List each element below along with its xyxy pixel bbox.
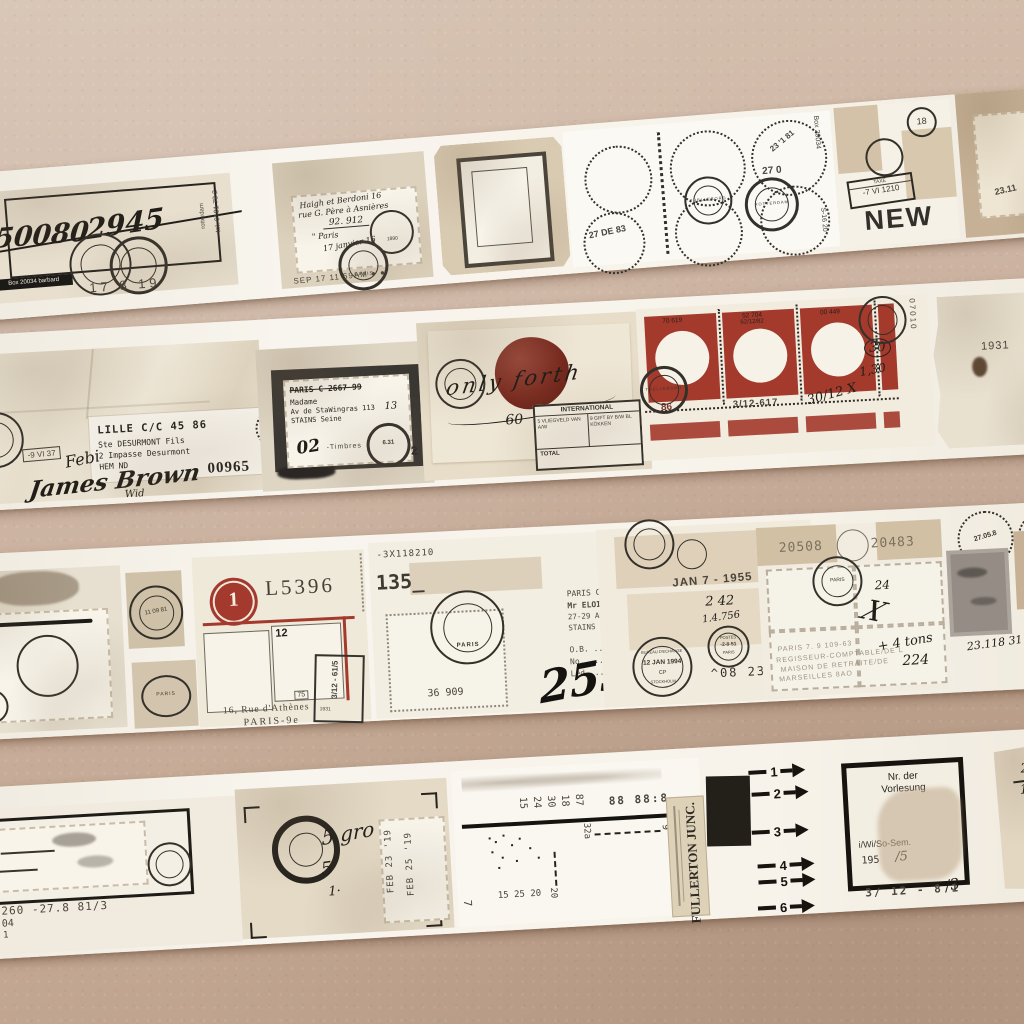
address-paris9: PARIS-9e (243, 715, 300, 729)
bracket-corner (250, 922, 267, 939)
postmark-ring-631: 6.31 (365, 422, 411, 468)
white-stamp: 22 19 (0, 608, 113, 724)
ephemera-rotterdam-label: 50080 2945 tel. 0101 78 2 rotterdam Box … (0, 173, 239, 304)
arrow-row-1: 1 (748, 762, 806, 781)
dark-stamp-line2: Madame (290, 397, 318, 407)
handwriting-5gro: 5 gro (322, 816, 375, 850)
ring-date-631: 6.31 (369, 439, 407, 447)
ephemera-dotted-circles-sheet: TRELLEBORG ROTTERDAM 27 DE 83 27 0 23 '1… (562, 110, 840, 267)
ephemera-vorlesung-box: Nr. der Vorlesung i/Wi/So-Sem. 195 /5 (841, 757, 970, 892)
tan-wash (409, 557, 542, 595)
red-stamp-1-number: 70 619 (662, 317, 682, 325)
ephemera-torn-1931-paper: 1931 (930, 289, 1024, 449)
rotated-number: 24 (531, 796, 543, 809)
number-135: 135_ (375, 568, 424, 594)
red-bar-partial (884, 411, 901, 428)
ephemera-empty-frame (433, 136, 571, 276)
ephemera-l5396-ticket: 1 L5396 12 75 16, Rue d'Athènes PARIS-9e… (192, 549, 372, 727)
arrow-head-icon (792, 763, 806, 778)
bracket-corner (244, 806, 261, 823)
table-cell-a: 5 VLIEGVELD VAN A/W (535, 414, 589, 449)
postmark-ring (146, 841, 192, 887)
datestamp-box: -9 VI 37 (22, 446, 61, 462)
arrow-head-icon (795, 785, 809, 800)
red-bar (728, 417, 799, 437)
smudge (77, 854, 114, 868)
handwriting-24: 24 (874, 578, 890, 593)
postmark-partial (0, 689, 9, 725)
ephemera-fraction-paper: 13: 2, 16 i/W (993, 738, 1024, 895)
dotted-divider (657, 132, 670, 254)
ephemera-stained-stamp: 22 19 (0, 565, 128, 735)
number-75-boxed: 75 (294, 690, 308, 700)
customs-table-stamp: INTERNATIONAL 5 VLIEGVELD VAN A/W 9 GIFT… (533, 399, 644, 471)
label-line1: LILLE C/C 45 86 (97, 419, 207, 437)
number-18: 18 (908, 115, 935, 127)
signature-sub: Wid (125, 488, 145, 500)
rotated-number: 87 (573, 794, 585, 807)
postmark-paris-small: PARIS (814, 576, 860, 584)
number-12: 12 (275, 627, 288, 640)
timbres-text: -Timbres (326, 442, 362, 451)
numbered-arrows-column: 1 2 3 4 5 6 (748, 754, 846, 913)
number-07010-vertical: 07010 (907, 298, 918, 331)
postmark-year: 1890 (372, 234, 412, 243)
empty-ring (15, 633, 80, 698)
bracket-corner (421, 792, 438, 809)
dashed-line (595, 830, 661, 836)
tan-strip (1013, 530, 1024, 609)
arrow-head-icon (796, 823, 810, 838)
ephemera-faded-stamp: 27.05.8 11.01.84 23.118 31 (940, 500, 1024, 689)
red-stamp-2-date: 62/12/82 (740, 318, 764, 325)
number-20508: 20508 (778, 539, 823, 556)
tan-smudge (876, 786, 965, 883)
number-7: 7 (461, 900, 474, 907)
ephemera-new-label: 18 TAXE -7 VI 1210 NEW (833, 99, 960, 248)
arrow-row-5: 5 (758, 871, 816, 890)
stain (0, 569, 80, 607)
fullerton-text: FULLERTON JUNC. (682, 802, 705, 924)
arrow-head-icon (801, 856, 815, 871)
ephemera-script-stamp: Haigh et Berdoni 16 rue G. Père à Asnièr… (272, 151, 434, 289)
stamp-mark (970, 596, 996, 605)
postmark-oval: PARIS (140, 674, 192, 718)
ring-postes-line1: POSTES (709, 634, 747, 641)
table-cell-b: 9 GIFT BY B/W BL KÖKKEN (588, 411, 641, 446)
white-stamp: PARIS C 2667 99 Madame Av de StaWingras … (283, 374, 414, 469)
handwriting-1: 1· (328, 884, 341, 900)
arrow-row-6: 6 (758, 897, 816, 916)
ephemera-tan-square-bottom: PARIS (132, 660, 199, 729)
chip-box-text: Box 20034 (8, 279, 37, 287)
datestamp-270: 27 0 (762, 165, 782, 178)
handwriting-slash3: /3 (943, 874, 961, 894)
new-text: NEW (863, 201, 934, 237)
postmark-ring (0, 411, 25, 470)
ink-smudge (972, 356, 988, 377)
handwriting-frac-16: 16 (1019, 782, 1024, 798)
dotted-edge (360, 553, 365, 611)
ephemera-fullerton-label: FULLERTON JUNC. (666, 795, 711, 917)
dotted-circle (581, 210, 648, 277)
number-312617: 3/12-617 (733, 397, 779, 410)
ephemera-tan-square-top: 11 09 81 (125, 570, 185, 649)
arrow-row-2: 2 (751, 784, 809, 803)
photo-washi-tape-wall: 50080 2945 tel. 0101 78 2 rotterdam Box … (0, 0, 1024, 1024)
vorlesung-195: 195 (861, 855, 880, 867)
arrow-head-icon (802, 898, 816, 913)
code-3x118210: -3X118210 (376, 548, 434, 561)
washi-strip-3: 22 19 11 09 81 PARIS 1 L5396 12 75 (0, 500, 1024, 742)
number-00965: 00965 (207, 458, 250, 477)
smudge-band (461, 764, 662, 795)
arrow-number: 6 (780, 899, 788, 914)
red-stamp-3-number: 00 449 (820, 308, 840, 316)
black-block (706, 776, 751, 847)
outline-box-1 (203, 630, 273, 713)
dashed-line-vertical (553, 852, 557, 886)
ephemera-box260-label: EX Box 260 -27.8 81/3 5-301 04 A 1 (0, 796, 243, 957)
arrow-row-3: 3 (751, 822, 809, 841)
arrow-number: 3 (773, 824, 781, 839)
white-stamp (972, 108, 1024, 219)
chip-name-text: barbard (38, 277, 59, 285)
number-20483: 20483 (870, 534, 915, 551)
black-outline-box (0, 808, 194, 906)
speckles (489, 837, 491, 839)
ephemera-feb-datestamps: 5 gro 5 1· FEB 23 '19 FEB 25 '19 (235, 778, 455, 940)
postmark-ring-date: 11 09 81 (128, 584, 185, 641)
stamp-mark (957, 567, 987, 578)
ephemera-red-stamp-sheet: 70 619 52 704 62/12/82 00 449 86 3/12-6 (636, 294, 936, 462)
arrow-number: 1 (770, 764, 778, 779)
ephemera-dark-tan-stamp: 23.11 (955, 84, 1024, 238)
rotated-number: 18 (559, 794, 571, 807)
handwriting-224: 224 (902, 652, 929, 669)
numbers-152520: 15 25 20 (498, 889, 542, 901)
serial-l5396: L5396 (265, 573, 336, 601)
handwriting-23118: 23.118 31 (966, 633, 1023, 653)
arrow-number: 5 (780, 873, 788, 888)
handwriting-frac-2: 2, (1020, 761, 1024, 777)
arrow-mark (0, 869, 38, 873)
white-stamp (0, 821, 149, 894)
red-bar (806, 413, 877, 433)
number-36909: 36 909 (427, 687, 464, 700)
ephemera-wax-seal-letter: only forth 60 INTERNATIONAL 5 VLIEGVELD … (416, 311, 652, 481)
ephemera-crumpled-envelope: -9 VI 37 LILLE C/C 45 86 Ste DESURMONT F… (0, 340, 267, 506)
date-270585: 27.05.8 (960, 526, 1012, 548)
empty-ring (864, 137, 905, 178)
small-1931: 1931 (320, 706, 331, 712)
number-13: 13 (384, 400, 397, 412)
red-stamp-2: 52 704 62/12/82 (722, 309, 799, 399)
rotated-number: 15 (517, 797, 529, 810)
arrow-number: 4 (779, 857, 787, 872)
postmark-paris-oval: PARIS (143, 690, 189, 698)
rotated-8888: 88 88:8 (608, 791, 669, 807)
box-20034-vertical: Box 20034 (812, 115, 822, 149)
rotated-32a: 32a (581, 823, 592, 840)
smudge (52, 831, 97, 847)
number-1931: 1931 (981, 339, 1010, 353)
arrow-number: 2 (773, 786, 781, 801)
dotted-circle (582, 143, 655, 216)
ornate-frame-inner (471, 167, 533, 247)
white-circle (732, 327, 789, 384)
arrow-head-icon (802, 872, 816, 887)
dark-stamp-line4: STAINS Seine (291, 414, 342, 425)
washi-strip-4: EX Box 260 -27.8 81/3 5-301 04 A 1 5 gro… (0, 726, 1024, 962)
ring-postes-line3: PARIS (710, 649, 748, 656)
datestamp-31261: 3/12 - 61/5 (330, 660, 340, 698)
rotated-number: 30 (545, 795, 557, 808)
a1-text: A 1 (0, 930, 9, 941)
handwriting-02: 02 (295, 436, 322, 459)
washi-strip-2: -9 VI 37 LILLE C/C 45 86 Ste DESURMONT F… (0, 275, 1024, 513)
rotated-20: 20 (548, 887, 559, 898)
number-2: 2 (411, 443, 418, 457)
faded-violet-stamp (946, 548, 1012, 637)
handwriting-60: 60 (505, 412, 524, 429)
handwriting-242: 2 42 (705, 593, 735, 609)
red-number-badge: 1 (209, 577, 259, 627)
badge-number-1: 1 (228, 588, 239, 611)
arrow-mark (1, 850, 55, 855)
datestamp-box-rotated: 3/12 - 61/5 1931 (313, 654, 364, 723)
ephemera-dark-stamp: PARIS C 2667 99 Madame Av de StaWingras … (255, 341, 434, 492)
thick-ink-line (0, 619, 93, 628)
dark-stamp-line1: PARIS C 2667 99 (289, 382, 362, 395)
ephemera-20508-grid: 20508 20483 PARIS 24 X + 4 tons 224 PARI… (756, 519, 949, 698)
red-bar (650, 421, 721, 441)
